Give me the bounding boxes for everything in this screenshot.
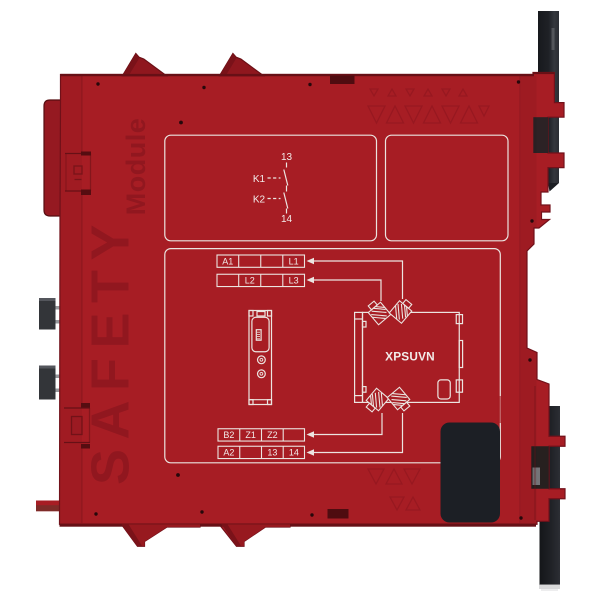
svg-text:Z2: Z2 bbox=[267, 430, 278, 440]
svg-text:13: 13 bbox=[267, 448, 277, 458]
svg-text:Module: Module bbox=[121, 118, 151, 216]
svg-text:14: 14 bbox=[289, 448, 299, 458]
svg-text:A2: A2 bbox=[223, 448, 234, 458]
svg-text:L2: L2 bbox=[245, 276, 255, 286]
svg-text:14: 14 bbox=[281, 214, 293, 225]
svg-text:XPSUVN: XPSUVN bbox=[385, 350, 435, 364]
svg-text:L3: L3 bbox=[289, 276, 299, 286]
svg-text:L1: L1 bbox=[289, 256, 299, 266]
svg-text:13: 13 bbox=[281, 152, 293, 163]
svg-text:Z1: Z1 bbox=[245, 430, 256, 440]
svg-text:K1: K1 bbox=[253, 174, 266, 185]
svg-text:K2: K2 bbox=[253, 195, 266, 206]
svg-text:A1: A1 bbox=[222, 256, 233, 266]
svg-text:B2: B2 bbox=[223, 430, 234, 440]
